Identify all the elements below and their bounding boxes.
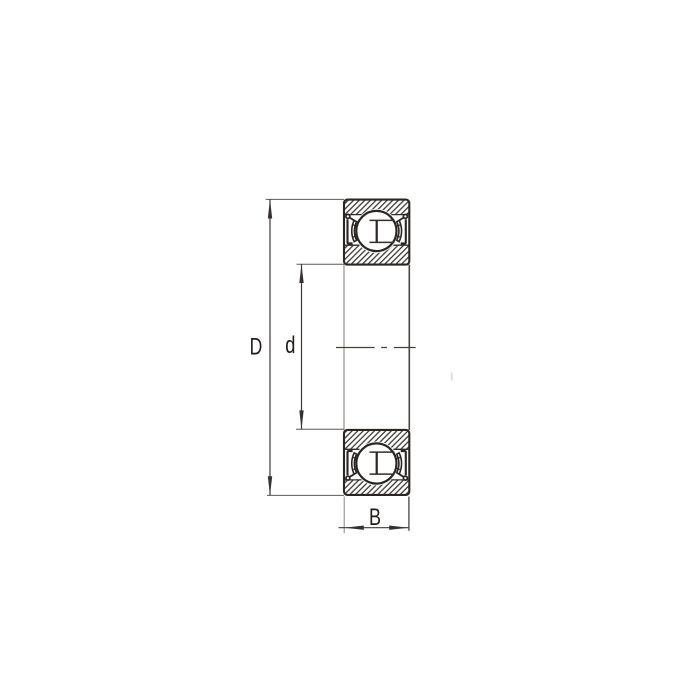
svg-text:B: B	[369, 504, 381, 530]
svg-text:d: d	[285, 332, 295, 359]
svg-text:D: D	[250, 334, 263, 360]
